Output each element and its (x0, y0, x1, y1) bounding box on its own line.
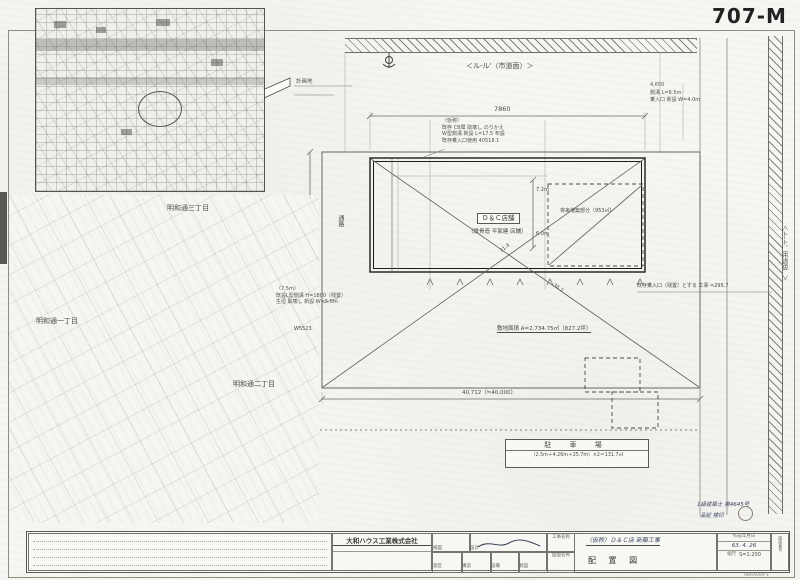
title-block: 大和ハウス工業株式会社 検図 設計 意匠 構造 設備 (26, 531, 790, 573)
right-note-line: 4,650 (650, 82, 700, 90)
diagonal-brace-lines (323, 159, 699, 387)
left-note-line: 生垣 取壊し 新設 W=5.0m (276, 299, 346, 306)
building-partitions (392, 159, 548, 271)
benchmark-icon (383, 53, 395, 68)
right-road-label: ＜ト-ト'（市道B）＞ (780, 225, 787, 281)
architect-stamp-line2: 品証 検印 (700, 513, 724, 519)
approval-label: 設備 (491, 564, 500, 569)
project-name-value: （仮称）Ｄ＆Ｃ店 新築工事 (586, 538, 660, 546)
approval-cell-ishou: 意匠 (432, 551, 463, 573)
vicinity-block (96, 27, 106, 33)
approval-cell-sekkei: 設計 (469, 533, 548, 553)
corner-code: 9B6A009-1 (744, 573, 769, 578)
drawing-number-label: 図面番号 (778, 536, 782, 552)
vicinity-site-flag-label: 計画地 (296, 79, 313, 85)
future-area-label: 将来増築部分（953㎡） (560, 209, 615, 215)
revision-notes-box (28, 533, 332, 571)
scale-value: S=1:200 (739, 553, 761, 559)
vicinity-block (156, 19, 170, 26)
approval-label: 意匠 (433, 564, 442, 569)
inner-dimension-2: 6.0m (536, 232, 549, 238)
signature-scribble (474, 537, 544, 550)
vicinity-block (211, 59, 223, 66)
vicinity-map (35, 8, 265, 192)
parking-calc-box: 駐 車 場 （2.5m＋4.26m＋25.7m）×2＝131.7㎡ (505, 439, 649, 468)
right-notes: 4,650 側溝 L=6.5m 乗入口 新設 W=4.0m (650, 82, 700, 105)
building-label-box: Ｄ＆Ｃ店舗 (477, 213, 520, 224)
extension-lines (322, 52, 700, 403)
aisle-label: 通路 (336, 215, 343, 227)
date-value: 63. 4. 26 (718, 542, 770, 551)
vicinity-road-band (36, 39, 264, 51)
approval-grid: 検図 設計 意匠 構造 設備 製図 (432, 533, 547, 571)
vicinity-block (121, 129, 132, 135)
company-cell: 大和ハウス工業株式会社 (332, 533, 432, 571)
project-label: 工事名称 (552, 536, 570, 541)
parking-stall-ticks (427, 279, 643, 285)
top-note-line: 既存乗入口使用 40518.1 (442, 138, 505, 145)
drawing-sheet: 707-M (0, 0, 800, 580)
scale-label: 縮尺 (727, 553, 736, 559)
approval-label: 構造 (462, 564, 471, 569)
building-sub-label: （鉄骨造 平家建 店舗） (468, 229, 527, 235)
date-label: 作成年月日 (718, 534, 770, 542)
drawing-number-cell: 図面番号 (771, 533, 789, 571)
inner-dimension-1: 7.2m (536, 188, 549, 194)
top-note: （仮称） 既存 CB塀 取壊し のりかえ W型側溝 新設 L=17.5 布設 既… (442, 118, 505, 144)
right-road-edges (700, 38, 727, 515)
top-note-line: W型側溝 新設 L=17.5 布設 (442, 131, 505, 138)
right-mid-note: 既存乗入口（残置）とする 工事 ≒295.7 (637, 284, 729, 290)
street-label-1chome: 明和通一丁目 (36, 317, 78, 325)
revision-line (33, 557, 327, 558)
left-note: （7.5m） 既設L型側溝 H=1800（残置） 生垣 取壊し 新設 W=5.0… (276, 286, 346, 306)
top-dimension: 7860 (494, 106, 511, 113)
vicinity-site-circle (138, 91, 182, 127)
site-area-note: 敷地面積 A=2,734.75㎡（827.2坪） (497, 326, 591, 333)
top-road-hatch (345, 38, 697, 53)
right-note-line: 乗入口 新設 W=4.0m (650, 97, 700, 105)
seal-stamp-icon (738, 506, 753, 521)
approval-label: 製図 (519, 564, 528, 569)
revision-line (33, 549, 327, 550)
company-name: 大和ハウス工業株式会社 (333, 538, 431, 546)
area-map (9, 195, 319, 523)
drawing-title-value: 配 置 図 (588, 556, 642, 565)
street-label-3chome: 明和通三丁目 (167, 204, 209, 212)
revision-line (33, 541, 327, 542)
revision-line (33, 565, 327, 566)
approval-cell-kenzu: 検図 (432, 533, 471, 553)
project-label-cell: 工事名称 (547, 533, 575, 553)
parking-title: 駐 車 場 (506, 440, 648, 451)
street-label-2chome: 明和通二丁目 (233, 380, 275, 388)
company-cell-divider (333, 551, 431, 552)
vicinity-road-band (36, 77, 264, 85)
top-road-label: ＜ル-ル'（市道面）＞ (466, 62, 533, 70)
names-section: 工事名称 （仮称）Ｄ＆Ｃ店 新築工事 図面名称 配 置 図 (547, 533, 717, 571)
date-scale-section: 作成年月日 63. 4. 26 縮尺 S=1:200 (717, 533, 771, 571)
approval-cell-seizu: 製図 (518, 551, 548, 573)
approval-cell-setsubi: 設備 (490, 551, 520, 573)
drawing-label: 図面名称 (552, 554, 570, 559)
right-note-line: 側溝 L=6.5m (650, 90, 700, 98)
parking-calc: （2.5m＋4.26m＋25.7m）×2＝131.7㎡ (506, 451, 648, 458)
bottom-dimension: 40,712（≒40,000） (462, 390, 516, 396)
drawing-label-cell: 図面名称 (547, 551, 575, 573)
left-dimension: W5523 (294, 327, 312, 333)
approval-cell-kouzou: 構造 (461, 551, 492, 573)
vicinity-block (54, 21, 66, 28)
